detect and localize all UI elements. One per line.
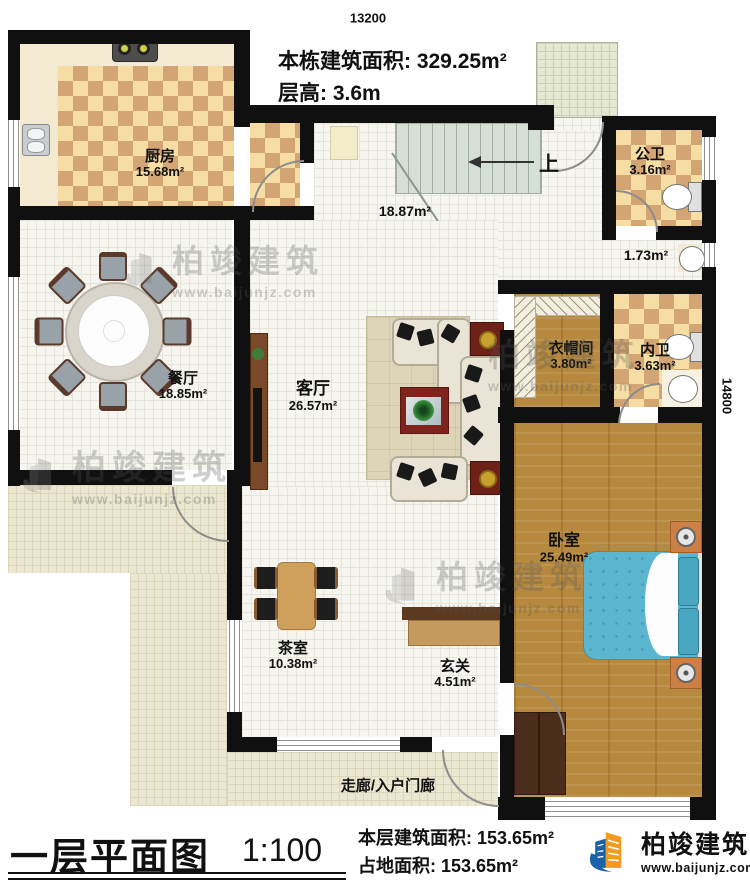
wall xyxy=(8,187,20,277)
room-name: 厨房 xyxy=(136,148,184,165)
wall xyxy=(8,30,250,44)
watermark: 柏竣建筑www.baijunjz.com xyxy=(18,440,232,507)
wall xyxy=(702,180,716,243)
wall xyxy=(300,123,314,163)
tea-chair xyxy=(314,567,338,589)
floor-area-text: 本层建筑面积: 153.65m² xyxy=(358,825,554,853)
kitchen-floor xyxy=(58,66,234,206)
plant-icon xyxy=(252,348,264,360)
room-label-corridor: 走廊/入户门廊 xyxy=(341,777,435,794)
headboard-cushion xyxy=(678,557,699,606)
stairs-up-label: 上 xyxy=(539,148,559,177)
wall xyxy=(498,280,716,294)
sink-bowl xyxy=(27,141,45,153)
stairs-direction-line xyxy=(480,161,534,163)
tea-chair xyxy=(254,598,278,620)
dimension-top: 13200 xyxy=(350,11,386,26)
watermark-logo-icon xyxy=(120,246,164,290)
watermark: 柏竣建筑www.baijunjz.com xyxy=(488,330,640,394)
console-table xyxy=(408,620,500,646)
floor-height-text: 层高: 3.6m xyxy=(278,78,507,110)
dimension-right: 14800 xyxy=(720,378,735,414)
window xyxy=(277,739,400,751)
hall-cabinet xyxy=(330,126,358,160)
dining-chair xyxy=(163,318,192,346)
room-name: 卧室 xyxy=(540,532,588,550)
room-area: 15.68m² xyxy=(136,165,184,180)
wall xyxy=(528,116,554,130)
wall xyxy=(227,712,242,752)
wall xyxy=(400,737,432,752)
watermark-url: www.baijunjz.com xyxy=(172,284,324,300)
area-summary: 本层建筑面积: 153.65m² 占地面积: 153.65m² xyxy=(358,825,554,881)
plant-icon xyxy=(413,400,434,421)
toilet xyxy=(662,184,692,210)
watermark-logo-icon xyxy=(18,451,64,497)
title-underline xyxy=(8,872,346,880)
room-label-dining: 餐厅 18.85m² xyxy=(159,370,207,402)
room-name: 茶室 xyxy=(269,640,317,657)
terrace-strip xyxy=(130,573,227,806)
room-name: 公卫 xyxy=(629,146,670,163)
room-name: 餐厅 xyxy=(159,370,207,387)
nightstand xyxy=(670,657,702,689)
bed-pillows xyxy=(645,553,678,656)
room-label-public-bath: 公卫 3.16m² xyxy=(629,146,670,178)
title-block: 一层平面图 1:100 本层建筑面积: 153.65m² 占地面积: 153.6… xyxy=(0,822,750,884)
room-label-stair-hall: 18.87m² xyxy=(379,203,431,219)
watermark-logo-icon xyxy=(380,560,428,608)
window xyxy=(545,800,690,817)
lazy-susan xyxy=(103,320,125,342)
watermark-url: www.baijunjz.com xyxy=(436,600,588,616)
watermark-text: 柏竣建筑 xyxy=(72,440,232,489)
lamp-icon xyxy=(676,527,696,547)
room-area: 3.16m² xyxy=(629,163,670,178)
room-label-ensuite: 内卫 3.63m² xyxy=(634,342,675,374)
wall xyxy=(702,267,716,797)
room-area: 4.51m² xyxy=(434,675,475,690)
side-table-medallion xyxy=(479,470,497,488)
wall xyxy=(242,737,277,752)
wall xyxy=(702,116,716,137)
floor-plan: 13200 14800 本栋建筑面积: 329.25m² 层高: 3.6m 厨房… xyxy=(0,0,750,884)
wall xyxy=(690,797,716,820)
brand-url: www.baijunjz.com xyxy=(641,861,750,875)
watermark: 柏竣建筑www.baijunjz.com xyxy=(120,236,324,300)
brand-logo: 柏竣建筑 www.baijunjz.com xyxy=(583,824,750,876)
wall xyxy=(234,44,250,127)
room-area: 3.63m² xyxy=(634,359,675,374)
room-area: 26.57m² xyxy=(289,398,337,413)
room-label-living: 客厅 26.57m² xyxy=(289,379,337,413)
pillow xyxy=(441,463,459,481)
window xyxy=(229,620,242,712)
building-area-text: 本栋建筑面积: 329.25m² xyxy=(278,46,507,78)
headboard-cushion xyxy=(678,608,699,655)
watermark-text: 柏竣建筑 xyxy=(488,330,640,376)
wall xyxy=(602,226,616,240)
room-name: 玄关 xyxy=(434,658,475,675)
dining-chair xyxy=(99,382,127,411)
window xyxy=(8,277,20,430)
wall xyxy=(602,116,716,130)
sink-bowl xyxy=(27,128,45,140)
stairs-arrow-icon xyxy=(468,156,481,168)
tea-table xyxy=(277,562,316,630)
watermark-url: www.baijunjz.com xyxy=(488,378,640,394)
room-name: 客厅 xyxy=(289,379,337,399)
brand-name: 柏竣建筑 xyxy=(641,825,750,861)
room-label-tea-room: 茶室 10.38m² xyxy=(269,640,317,672)
lamp-icon xyxy=(676,663,696,683)
tv xyxy=(253,388,262,462)
wall xyxy=(602,130,616,232)
wall xyxy=(658,407,716,423)
land-area-text: 占地面积: 153.65m² xyxy=(358,853,554,881)
wall xyxy=(498,407,620,423)
room-area: 10.38m² xyxy=(269,657,317,672)
room-label-wash-corner: 1.73m² xyxy=(624,247,668,263)
tea-chair xyxy=(314,598,338,620)
tea-chair xyxy=(254,567,278,589)
side-table xyxy=(470,461,504,495)
wall xyxy=(500,735,514,797)
room-label-kitchen: 厨房 15.68m² xyxy=(136,148,184,180)
brand-text: 柏竣建筑 www.baijunjz.com xyxy=(641,825,750,875)
nightstand xyxy=(670,521,702,553)
room-name: 内卫 xyxy=(634,342,675,359)
window xyxy=(704,243,716,267)
watermark-url: www.baijunjz.com xyxy=(72,491,232,507)
window xyxy=(8,120,20,187)
watermark-text: 柏竣建筑 xyxy=(172,236,324,282)
brand-logo-icon xyxy=(583,824,635,876)
room-label-foyer: 玄关 4.51m² xyxy=(434,658,475,690)
window xyxy=(704,137,716,180)
room-area: 18.85m² xyxy=(159,387,207,402)
kitchen-sink xyxy=(22,124,50,156)
wall xyxy=(498,797,545,820)
wash-basin xyxy=(668,375,698,403)
wall xyxy=(8,44,20,120)
plan-header: 本栋建筑面积: 329.25m² 层高: 3.6m xyxy=(278,46,507,109)
watermark: 柏竣建筑www.baijunjz.com xyxy=(380,552,588,616)
watermark-text: 柏竣建筑 xyxy=(436,552,588,598)
dining-chair xyxy=(35,318,64,346)
plan-scale: 1:100 xyxy=(242,832,322,869)
